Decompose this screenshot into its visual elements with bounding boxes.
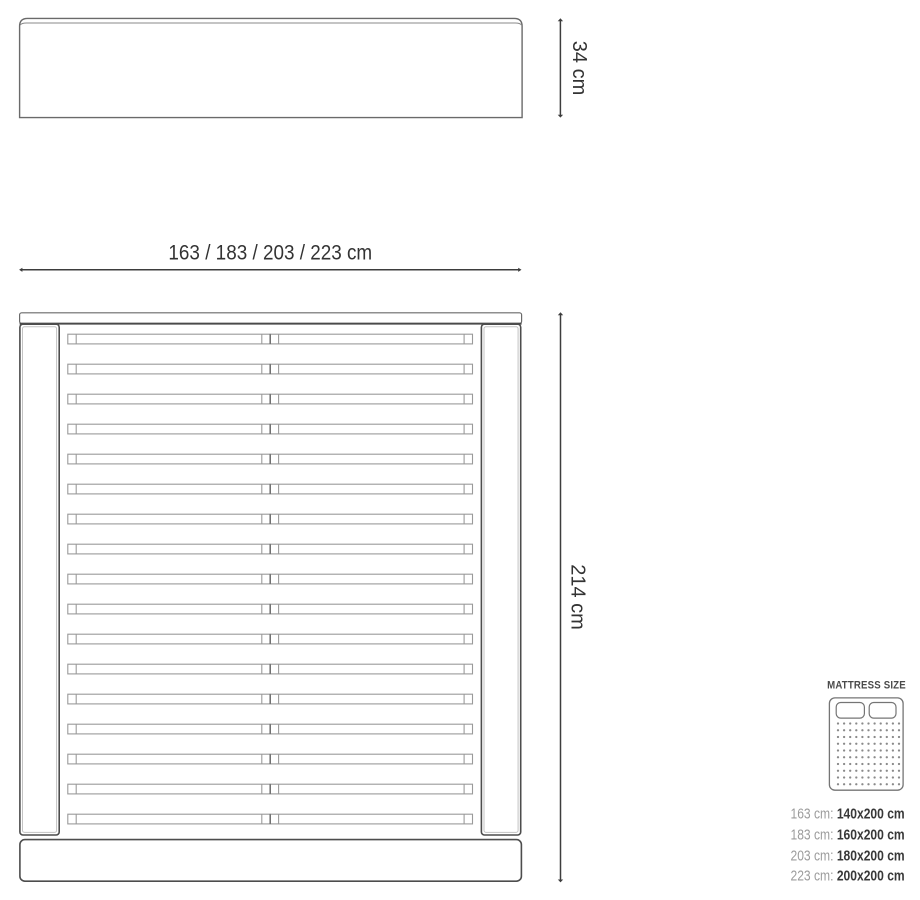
svg-text:163 / 183 / 203 / 223 cm: 163 / 183 / 203 / 223 cm [168, 242, 372, 265]
svg-text:183 cm: 160x200 cm: 183 cm: 160x200 cm [791, 826, 905, 843]
svg-text:34 cm: 34 cm [568, 41, 590, 95]
svg-text:MATTRESS SIZE: MATTRESS SIZE [827, 679, 906, 692]
svg-text:223 cm: 200x200 cm: 223 cm: 200x200 cm [791, 867, 905, 884]
svg-text:214 cm: 214 cm [567, 564, 589, 630]
svg-text:163 cm: 140x200 cm: 163 cm: 140x200 cm [791, 805, 905, 822]
svg-text:203 cm: 180x200 cm: 203 cm: 180x200 cm [791, 847, 905, 864]
